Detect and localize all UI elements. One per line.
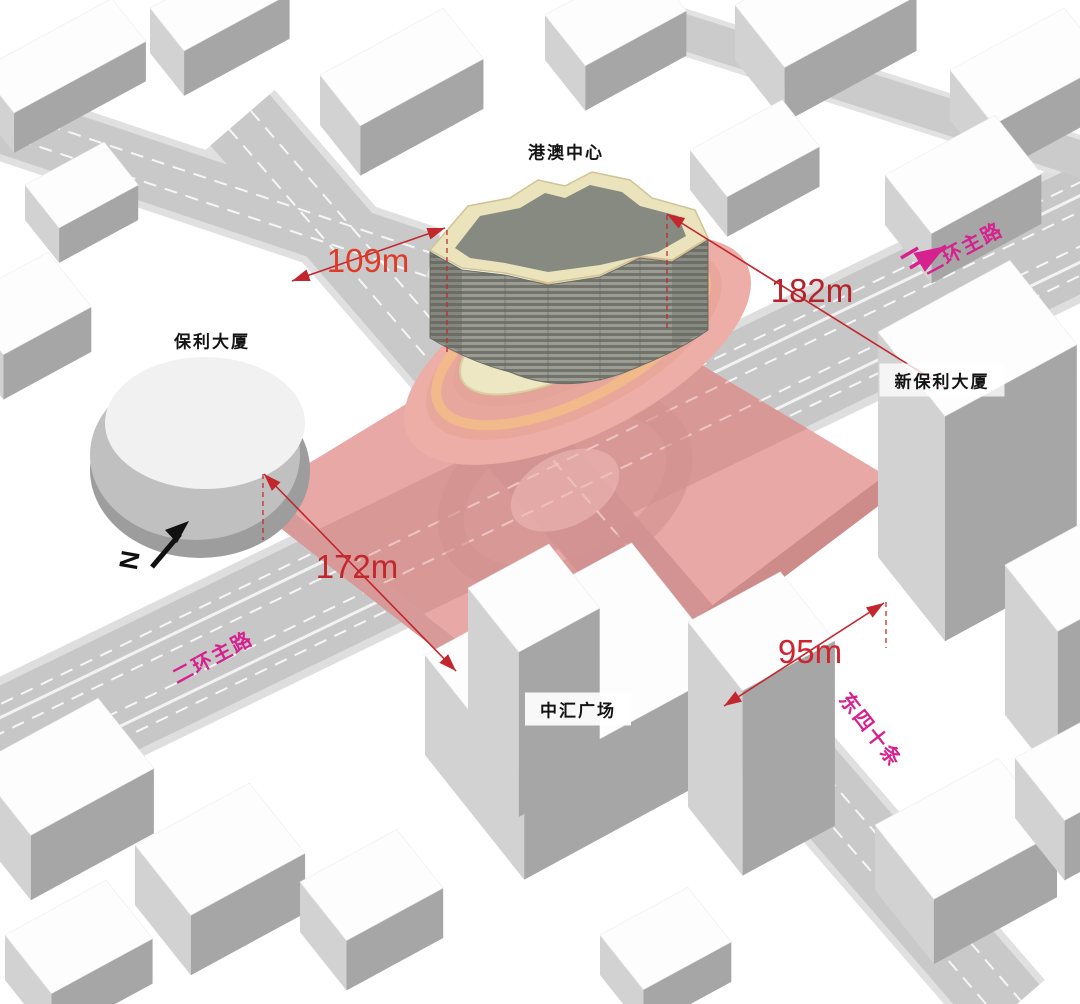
site-analysis-diagram: 港澳中心 保利大厦 新保利大厦 中汇广场 109m 182m 172m 95m … bbox=[0, 0, 1080, 1004]
dimension-south-95m: 95m bbox=[778, 633, 842, 671]
poly-plaza-curved-building bbox=[90, 357, 310, 558]
dimension-west-172m: 172m bbox=[316, 548, 399, 586]
label-zhonghui-plaza: 中汇广场 bbox=[525, 693, 631, 726]
dimension-north-109m: 109m bbox=[327, 242, 410, 280]
dimension-east-182m: 182m bbox=[771, 272, 854, 310]
label-poly-plaza: 保利大厦 bbox=[159, 324, 265, 357]
label-gangao-center: 港澳中心 bbox=[513, 135, 619, 168]
label-new-poly-plaza: 新保利大厦 bbox=[880, 364, 1005, 397]
